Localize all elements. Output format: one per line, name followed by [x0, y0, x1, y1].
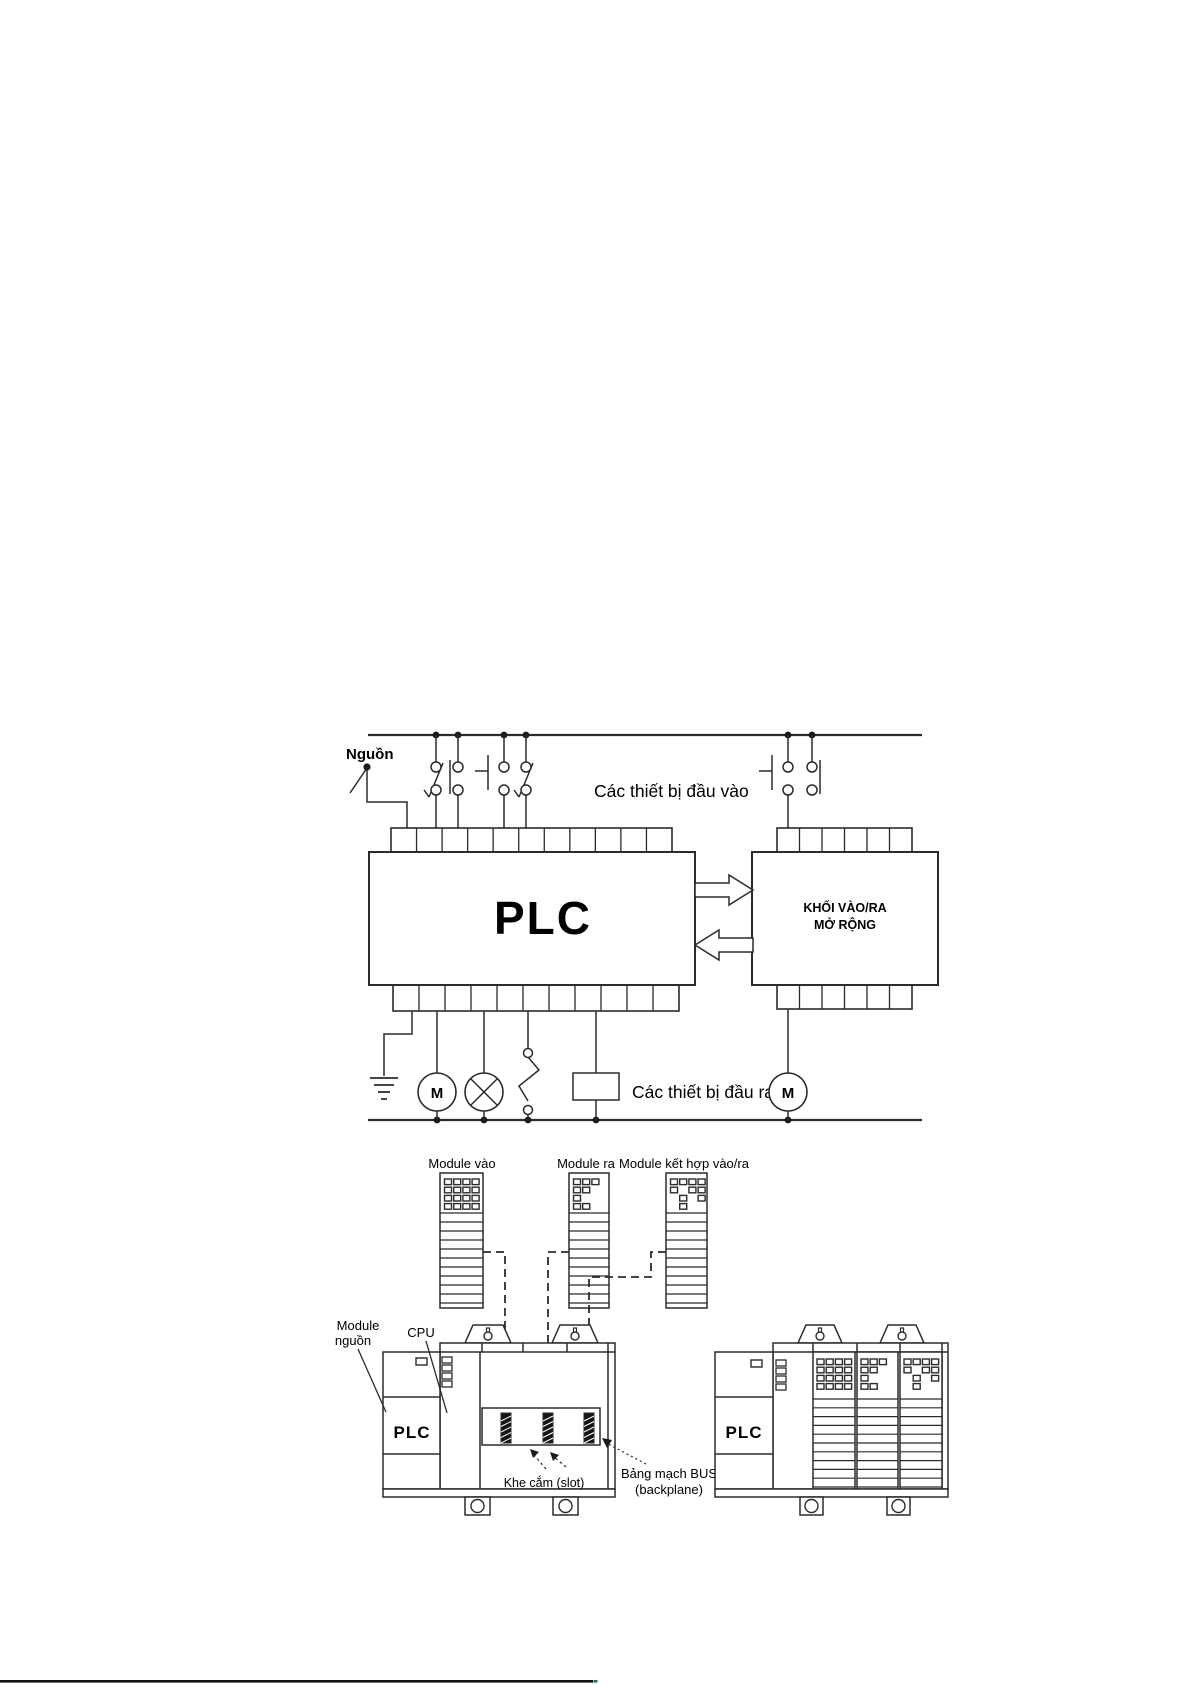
module-in-label: Module vào — [428, 1156, 495, 1171]
arrow-right-icon — [695, 875, 753, 905]
io-modules — [440, 1173, 707, 1308]
mounting-foot — [553, 1497, 578, 1515]
backplane-board — [482, 1408, 600, 1445]
motor-output-2 — [769, 1009, 807, 1120]
backplane-label-line1: Bảng mạch BUS — [621, 1466, 717, 1481]
ground-symbol — [370, 1011, 412, 1099]
backplane-label-line2: (backplane) — [635, 1482, 703, 1497]
expansion-label-line1: KHỐI VÀO/RA — [803, 900, 886, 915]
page-canvas: Nguồn — [0, 0, 1191, 1685]
plc-module-assembly-diagram: Module vào Module ra Module kết hợp vào/… — [335, 1156, 948, 1515]
power-source-symbol — [350, 763, 407, 828]
mounting-foot — [887, 1497, 910, 1515]
module-combo-label: Module kết hợp vào/ra — [619, 1156, 750, 1171]
arrow-left-icon — [695, 930, 753, 960]
mounting-foot — [465, 1497, 490, 1515]
footer-divider — [0, 1680, 593, 1683]
plc-io-wiring-diagram: Nguồn — [346, 732, 938, 1124]
cpu-label: CPU — [407, 1325, 434, 1340]
power-source-label: Nguồn — [346, 746, 393, 763]
bottom-rail-strip — [715, 1489, 948, 1497]
expansion-label-line2: MỞ RỘNG — [814, 917, 876, 932]
footer-divider-dot — [594, 1680, 598, 1683]
module-out-label: Module ra — [557, 1156, 616, 1171]
motor-1-label: M — [431, 1085, 444, 1102]
input-pushbutton-1 — [475, 735, 509, 828]
input-switch-lever-2 — [514, 735, 533, 828]
power-module-label-line1: Module — [337, 1318, 380, 1333]
inserted-modules — [813, 1352, 942, 1489]
input-pushbutton-2 — [759, 735, 793, 828]
power-module-label-line2: nguồn — [335, 1333, 371, 1348]
document-page: Nguồn — [0, 0, 1191, 1685]
input-switch-contact-2 — [807, 735, 820, 795]
motor-output-1 — [418, 1011, 456, 1120]
lamp-output — [465, 1011, 503, 1120]
plc-title: PLC — [494, 892, 592, 944]
relay-output — [573, 1011, 619, 1120]
bottom-rail-strip — [383, 1489, 615, 1497]
plc-base-label: PLC — [394, 1423, 431, 1442]
power-module-section — [383, 1352, 440, 1489]
motor-2-label: M — [782, 1085, 795, 1102]
plc-assembled-unit — [715, 1325, 948, 1515]
mounting-foot — [800, 1497, 823, 1515]
slot-label: Khe cắm (slot) — [504, 1475, 585, 1490]
input-switch-contact-1 — [450, 735, 463, 828]
heater-output — [519, 1011, 539, 1120]
output-devices-label: Các thiết bị đầu ra — [632, 1082, 774, 1102]
plc-assembled-label: PLC — [726, 1423, 763, 1442]
input-switch-lever-1 — [424, 735, 443, 828]
power-module-section — [715, 1352, 773, 1489]
input-devices-label: Các thiết bị đầu vào — [594, 781, 749, 801]
